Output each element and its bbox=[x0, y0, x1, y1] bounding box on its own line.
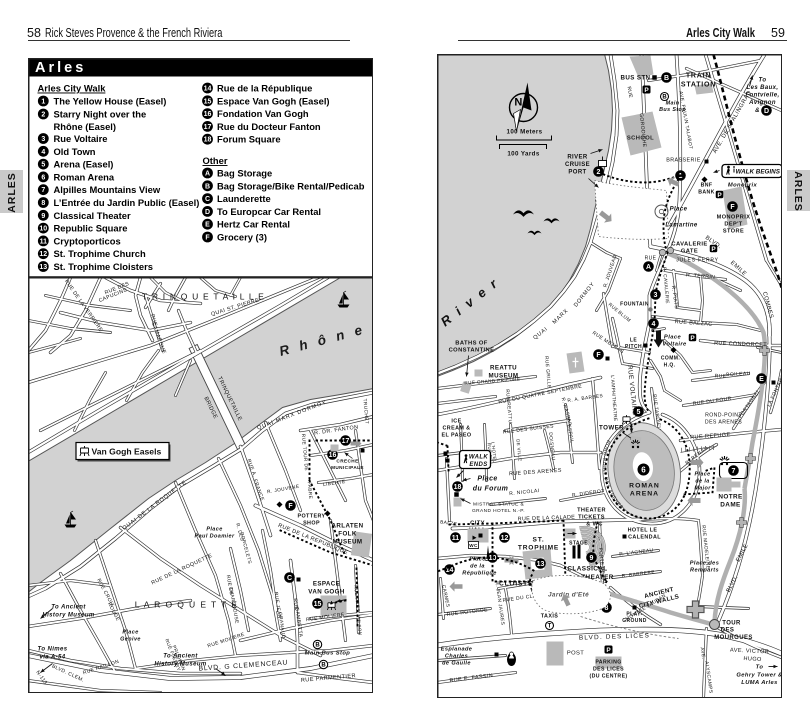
svg-text:PORT: PORT bbox=[568, 169, 586, 175]
svg-text:Arles City Walk: Arles City Walk bbox=[37, 83, 106, 94]
svg-text:BRASSERIE: BRASSERIE bbox=[666, 157, 700, 163]
svg-text:Les Baux,: Les Baux, bbox=[746, 85, 778, 91]
svg-text:H.Q.: H.Q. bbox=[663, 362, 675, 368]
svg-text:15: 15 bbox=[313, 601, 321, 608]
svg-text:To: To bbox=[758, 77, 766, 83]
svg-text:St. Trophime Cloisters: St. Trophime Cloisters bbox=[53, 261, 153, 272]
svg-text:CRUISE: CRUISE bbox=[564, 162, 589, 168]
svg-text:5: 5 bbox=[41, 162, 45, 169]
svg-text:DEP'T: DEP'T bbox=[724, 221, 742, 227]
svg-text:14: 14 bbox=[445, 567, 453, 574]
svg-text:VAN GOGH: VAN GOGH bbox=[308, 588, 345, 595]
svg-text:P: P bbox=[717, 191, 722, 198]
svg-text:de Gaulle: de Gaulle bbox=[442, 660, 471, 666]
svg-text:3: 3 bbox=[41, 136, 45, 143]
svg-text:L’Entrée du Jardin Public (Eas: L’Entrée du Jardin Public (Easel) bbox=[53, 197, 199, 208]
svg-text:PITCH: PITCH bbox=[625, 344, 642, 350]
svg-text:ENDS: ENDS bbox=[469, 462, 487, 468]
svg-text:1: 1 bbox=[41, 99, 45, 106]
svg-text:de la: de la bbox=[470, 563, 485, 569]
svg-text:D: D bbox=[763, 108, 768, 115]
svg-text:GROUND: GROUND bbox=[622, 618, 647, 624]
svg-text:ARENA: ARENA bbox=[629, 490, 658, 497]
svg-text:du Forum: du Forum bbox=[472, 485, 507, 492]
svg-text:History Museum: History Museum bbox=[154, 661, 207, 667]
svg-text:Old Town: Old Town bbox=[53, 146, 95, 157]
svg-text:C: C bbox=[286, 575, 291, 582]
svg-text:JULES FERRY: JULES FERRY bbox=[676, 257, 719, 263]
svg-text:Grocery (3): Grocery (3) bbox=[217, 232, 267, 243]
svg-text:To: To bbox=[755, 664, 763, 670]
svg-text:16: 16 bbox=[203, 111, 211, 118]
svg-text:BATHS OF: BATHS OF bbox=[455, 340, 487, 346]
svg-text:E: E bbox=[759, 376, 764, 383]
svg-text:de la: de la bbox=[695, 478, 709, 484]
svg-text:Avignon: Avignon bbox=[748, 100, 776, 106]
svg-text:MUSEUM: MUSEUM bbox=[332, 538, 362, 545]
svg-text:Republic Square: Republic Square bbox=[53, 223, 127, 234]
svg-text:DES LICES: DES LICES bbox=[593, 666, 624, 672]
svg-text:B: B bbox=[315, 642, 320, 648]
svg-text:EL PASEO: EL PASEO bbox=[441, 432, 471, 438]
svg-text:PARKING: PARKING bbox=[595, 659, 621, 665]
svg-text:To Nimes: To Nimes bbox=[37, 646, 67, 652]
svg-text:St. Trophime Church: St. Trophime Church bbox=[53, 248, 145, 259]
svg-text:Bag Storage/Bike Rental/Pedica: Bag Storage/Bike Rental/Pedicab bbox=[217, 180, 365, 191]
svg-text:F: F bbox=[205, 235, 210, 242]
svg-text:B: B bbox=[663, 75, 668, 82]
svg-text:18: 18 bbox=[203, 137, 211, 144]
svg-text:2: 2 bbox=[596, 169, 600, 176]
svg-text:18: 18 bbox=[453, 484, 461, 491]
svg-text:FOLK: FOLK bbox=[338, 530, 357, 537]
svg-text:8: 8 bbox=[41, 200, 45, 207]
svg-text:2: 2 bbox=[41, 112, 45, 119]
svg-text:To Ancient: To Ancient bbox=[51, 604, 86, 610]
svg-text:BOILEAU: BOILEAU bbox=[726, 370, 751, 377]
svg-text:Alpilles Mountains View: Alpilles Mountains View bbox=[53, 184, 160, 195]
svg-text:LUMA Arles: LUMA Arles bbox=[741, 680, 778, 686]
svg-text:13: 13 bbox=[39, 264, 47, 271]
svg-text:Voltaire: Voltaire bbox=[662, 341, 687, 347]
svg-text:4: 4 bbox=[651, 321, 655, 328]
svg-text:ARLATEN: ARLATEN bbox=[331, 522, 363, 529]
svg-text:PLAY-: PLAY- bbox=[626, 611, 642, 617]
svg-text:Fontvielle,: Fontvielle, bbox=[745, 92, 779, 98]
svg-text:Lamartine: Lamartine bbox=[665, 222, 698, 228]
svg-text:Hertz Car Rental: Hertz Car Rental bbox=[217, 219, 290, 230]
svg-text:Rhône (Easel): Rhône (Easel) bbox=[53, 121, 116, 132]
svg-text:Main Bus Stop: Main Bus Stop bbox=[304, 650, 350, 656]
svg-text:CREAM &: CREAM & bbox=[442, 425, 470, 431]
svg-text:Forum Square: Forum Square bbox=[217, 134, 281, 145]
svg-text:TICKETS: TICKETS bbox=[578, 514, 605, 520]
svg-text:A: A bbox=[204, 171, 209, 178]
svg-text:Arena (Easel): Arena (Easel) bbox=[53, 159, 113, 170]
svg-text:MONOPRIX: MONOPRIX bbox=[716, 214, 750, 220]
svg-text:CALENDAL: CALENDAL bbox=[628, 534, 661, 540]
svg-text:Esplanade: Esplanade bbox=[440, 646, 472, 652]
svg-text:Major: Major bbox=[694, 485, 711, 491]
svg-text:Roman Arena: Roman Arena bbox=[53, 171, 114, 182]
svg-text:9: 9 bbox=[589, 555, 593, 562]
svg-text:BUS STN.: BUS STN. bbox=[620, 74, 652, 81]
svg-text:Place: Place bbox=[477, 475, 497, 482]
svg-text:P: P bbox=[690, 334, 695, 341]
svg-text:&: & bbox=[755, 108, 760, 114]
svg-text:17: 17 bbox=[203, 124, 211, 131]
svg-text:COMM.: COMM. bbox=[660, 355, 679, 361]
svg-text:Gehry Tower &: Gehry Tower & bbox=[736, 672, 782, 678]
svg-text:5: 5 bbox=[636, 409, 640, 416]
svg-text:& WC: & WC bbox=[586, 521, 603, 527]
svg-text:POTTERY: POTTERY bbox=[297, 513, 325, 519]
svg-text:Bag Storage: Bag Storage bbox=[217, 168, 272, 179]
svg-text:ROMAN: ROMAN bbox=[629, 482, 660, 489]
svg-text:Classical Theater: Classical Theater bbox=[53, 210, 130, 221]
svg-text:GRAND HOTEL N.-P.: GRAND HOTEL N.-P. bbox=[472, 508, 525, 514]
svg-text:Other: Other bbox=[202, 155, 227, 166]
svg-text:MOURGUES: MOURGUES bbox=[714, 635, 753, 641]
svg-text:Place: Place bbox=[694, 471, 710, 477]
svg-text:Charles: Charles bbox=[444, 653, 467, 659]
svg-text:17: 17 bbox=[341, 438, 349, 445]
svg-text:GATE: GATE bbox=[680, 248, 697, 254]
svg-text:16: 16 bbox=[328, 452, 336, 459]
svg-text:7: 7 bbox=[41, 187, 45, 194]
svg-text:D: D bbox=[204, 209, 209, 216]
svg-text:13: 13 bbox=[536, 561, 544, 568]
svg-text:Cryptoporticos: Cryptoporticos bbox=[53, 235, 120, 246]
svg-text:(DU CENTRE): (DU CENTRE) bbox=[589, 673, 627, 679]
svg-text:WALK BEGINS: WALK BEGINS bbox=[735, 168, 780, 175]
svg-text:CAVALERIE: CAVALERIE bbox=[671, 241, 707, 247]
svg-text:Launderette: Launderette bbox=[217, 193, 271, 204]
svg-text:9: 9 bbox=[41, 213, 45, 220]
svg-text:DES ARENES: DES ARENES bbox=[704, 419, 741, 425]
svg-text:REATTU: REATTU bbox=[489, 364, 516, 371]
svg-text:FOUNTAIN: FOUNTAIN bbox=[620, 301, 649, 307]
svg-text:B: B bbox=[204, 183, 209, 190]
svg-text:ESPACE: ESPACE bbox=[312, 580, 339, 587]
svg-text:B: B bbox=[321, 662, 326, 668]
svg-text:4: 4 bbox=[41, 149, 45, 156]
svg-text:100 Meters: 100 Meters bbox=[506, 128, 542, 135]
svg-text:15: 15 bbox=[203, 98, 211, 105]
svg-text:P: P bbox=[644, 86, 649, 93]
svg-text:DAME: DAME bbox=[720, 501, 741, 508]
svg-text:Van Gogh Easels: Van Gogh Easels bbox=[91, 446, 161, 456]
svg-text:TROPHIME: TROPHIME bbox=[517, 544, 558, 551]
svg-text:LE: LE bbox=[629, 337, 636, 343]
svg-text:HOTEL LE: HOTEL LE bbox=[627, 527, 657, 533]
svg-text:MUNICIPALE: MUNICIPALE bbox=[331, 465, 364, 470]
svg-text:via A-54: via A-54 bbox=[39, 654, 65, 660]
svg-text:7: 7 bbox=[731, 468, 735, 475]
svg-text:BANK: BANK bbox=[698, 189, 715, 195]
svg-text:NOTRE: NOTRE bbox=[718, 493, 743, 500]
svg-text:A: A bbox=[645, 264, 650, 271]
svg-text:L A R O Q U E T T E: L A R O Q U E T T E bbox=[134, 599, 238, 609]
svg-text:ROND-POINT: ROND-POINT bbox=[705, 412, 742, 418]
svg-text:F: F bbox=[288, 503, 293, 510]
svg-text:F: F bbox=[730, 204, 735, 211]
svg-text:To Ancient: To Ancient bbox=[163, 653, 198, 659]
svg-text:Rue Voltaire: Rue Voltaire bbox=[53, 133, 107, 144]
svg-text:STORE: STORE bbox=[722, 228, 743, 234]
svg-text:Fondation Van Gogh: Fondation Van Gogh bbox=[217, 108, 309, 119]
svg-text:Monoprix: Monoprix bbox=[727, 182, 757, 188]
svg-text:MISTRAL STATUE &: MISTRAL STATUE & bbox=[472, 501, 523, 507]
svg-text:Place: Place bbox=[663, 334, 681, 340]
svg-text:SHOP: SHOP bbox=[303, 520, 320, 526]
svg-text:TOWER: TOWER bbox=[599, 424, 624, 431]
svg-text:3: 3 bbox=[653, 292, 657, 299]
svg-text:TOUR: TOUR bbox=[722, 620, 741, 626]
svg-text:11: 11 bbox=[451, 535, 459, 542]
svg-text:ST.: ST. bbox=[532, 536, 544, 543]
svg-text:RIVER: RIVER bbox=[567, 154, 588, 160]
svg-text:T: T bbox=[547, 623, 551, 629]
svg-text:C: C bbox=[204, 196, 209, 203]
svg-text:12: 12 bbox=[39, 251, 47, 258]
svg-text:WC: WC bbox=[469, 543, 478, 548]
svg-text:BNF: BNF bbox=[700, 182, 712, 188]
svg-text:P: P bbox=[606, 646, 611, 653]
svg-text:11: 11 bbox=[39, 238, 47, 245]
svg-text:Remparts: Remparts bbox=[689, 567, 718, 573]
svg-text:Rue de la République: Rue de la République bbox=[217, 83, 312, 94]
svg-text:POST: POST bbox=[566, 650, 583, 656]
svg-text:CRECHE: CRECHE bbox=[336, 458, 358, 463]
svg-text:TAXIS: TAXIS bbox=[540, 613, 557, 619]
svg-text:THEATER: THEATER bbox=[577, 507, 606, 513]
svg-text:N: N bbox=[514, 96, 522, 108]
svg-text:12: 12 bbox=[500, 535, 508, 542]
svg-text:Paul Doamier: Paul Doamier bbox=[194, 533, 234, 539]
svg-text:WALK: WALK bbox=[468, 454, 488, 460]
svg-text:Main: Main bbox=[665, 100, 679, 106]
svg-text:F: F bbox=[596, 352, 601, 359]
svg-text:To Europcar Car Rental: To Europcar Car Rental bbox=[217, 206, 321, 217]
svg-text:The Yellow House (Easel): The Yellow House (Easel) bbox=[53, 96, 166, 107]
svg-text:CONSTANTINE: CONSTANTINE bbox=[448, 347, 494, 353]
svg-text:6: 6 bbox=[41, 174, 45, 181]
svg-text:6: 6 bbox=[641, 465, 646, 474]
svg-text:DES: DES bbox=[720, 627, 734, 633]
svg-text:Starry Night over the: Starry Night over the bbox=[53, 109, 146, 120]
svg-text:Place: Place bbox=[206, 526, 222, 532]
svg-text:10: 10 bbox=[39, 226, 47, 233]
svg-text:History Museum: History Museum bbox=[42, 612, 95, 618]
svg-text:STATION: STATION bbox=[680, 81, 715, 88]
svg-text:E: E bbox=[205, 222, 210, 229]
svg-text:Place: Place bbox=[122, 629, 138, 635]
svg-text:HUGO: HUGO bbox=[743, 656, 762, 663]
svg-text:TRAIN: TRAIN bbox=[685, 72, 710, 79]
svg-text:RUE: RUE bbox=[714, 373, 726, 380]
svg-text:Espace Van Gogh (Easel): Espace Van Gogh (Easel) bbox=[217, 95, 330, 106]
svg-text:Genive: Genive bbox=[120, 636, 141, 642]
svg-text:Arles: Arles bbox=[35, 60, 86, 76]
svg-text:14: 14 bbox=[203, 86, 211, 93]
svg-text:Place: Place bbox=[669, 206, 687, 212]
svg-text:RUE: RUE bbox=[644, 255, 656, 261]
svg-text:100 Yards: 100 Yards bbox=[507, 150, 540, 157]
svg-text:Place des: Place des bbox=[689, 560, 718, 566]
svg-text:Rue du Docteur Fanton: Rue du Docteur Fanton bbox=[217, 121, 321, 132]
svg-text:ICE: ICE bbox=[451, 418, 461, 424]
